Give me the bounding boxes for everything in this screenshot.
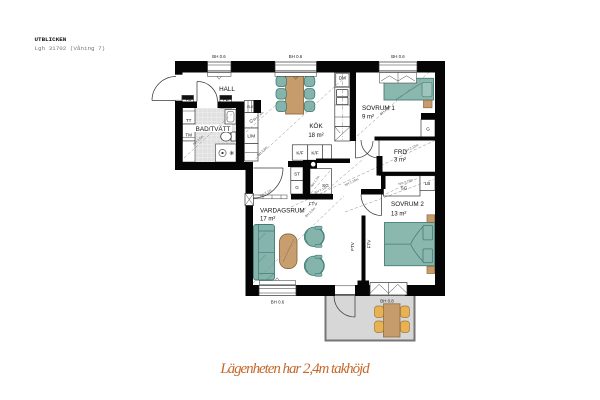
svg-text:SG: SG — [401, 186, 408, 191]
svg-text:BH 0.8: BH 0.8 — [380, 299, 394, 304]
svg-text:UTBLICKEN: UTBLICKEN — [35, 36, 67, 43]
svg-text:BH 0.6: BH 0.6 — [212, 54, 226, 59]
svg-text:KÖK: KÖK — [309, 122, 323, 130]
svg-text:HALL: HALL — [219, 86, 235, 93]
svg-text:BH 0.6: BH 0.6 — [271, 300, 285, 305]
svg-text:L/M: L/M — [247, 134, 255, 139]
svg-text:18 m²: 18 m² — [308, 133, 323, 139]
svg-text:FTV: FTV — [309, 202, 319, 207]
svg-text:G: G — [295, 185, 299, 190]
svg-text:Lgh 31702 (Våning 7): Lgh 31702 (Våning 7) — [35, 45, 106, 52]
svg-text:9 m²: 9 m² — [362, 115, 374, 121]
svg-text:FTV: FTV — [350, 241, 355, 251]
svg-text:TT: TT — [186, 118, 192, 123]
svg-text:FB: FB — [186, 97, 192, 102]
svg-text:BH 0.6: BH 0.6 — [391, 54, 405, 59]
svg-text:BH 0.6: BH 0.6 — [289, 54, 303, 59]
svg-text:Lägenheten har 2,4m takhöjd: Lägenheten har 2,4m takhöjd — [219, 361, 370, 377]
svg-text:FB: FB — [223, 97, 229, 102]
svg-text:EL/IT: EL/IT — [247, 105, 255, 109]
svg-text:DM: DM — [339, 76, 346, 81]
svg-text:VARDAGSRUM: VARDAGSRUM — [260, 208, 305, 215]
svg-text:K/F: K/F — [296, 151, 303, 156]
svg-text:13 m²: 13 m² — [391, 212, 406, 218]
svg-text:17 m²: 17 m² — [260, 217, 275, 223]
svg-text:FTV: FTV — [367, 239, 372, 249]
svg-text:ST: ST — [294, 172, 300, 177]
svg-text:3 m²: 3 m² — [394, 158, 406, 164]
svg-text:TM: TM — [185, 133, 192, 138]
svg-text:BAD/TVÄTT: BAD/TVÄTT — [196, 125, 231, 133]
svg-text:K/F: K/F — [311, 151, 318, 156]
svg-text:LB: LB — [425, 181, 431, 186]
svg-text:SOVRUM 2: SOVRUM 2 — [391, 201, 424, 208]
svg-text:G: G — [426, 127, 430, 132]
